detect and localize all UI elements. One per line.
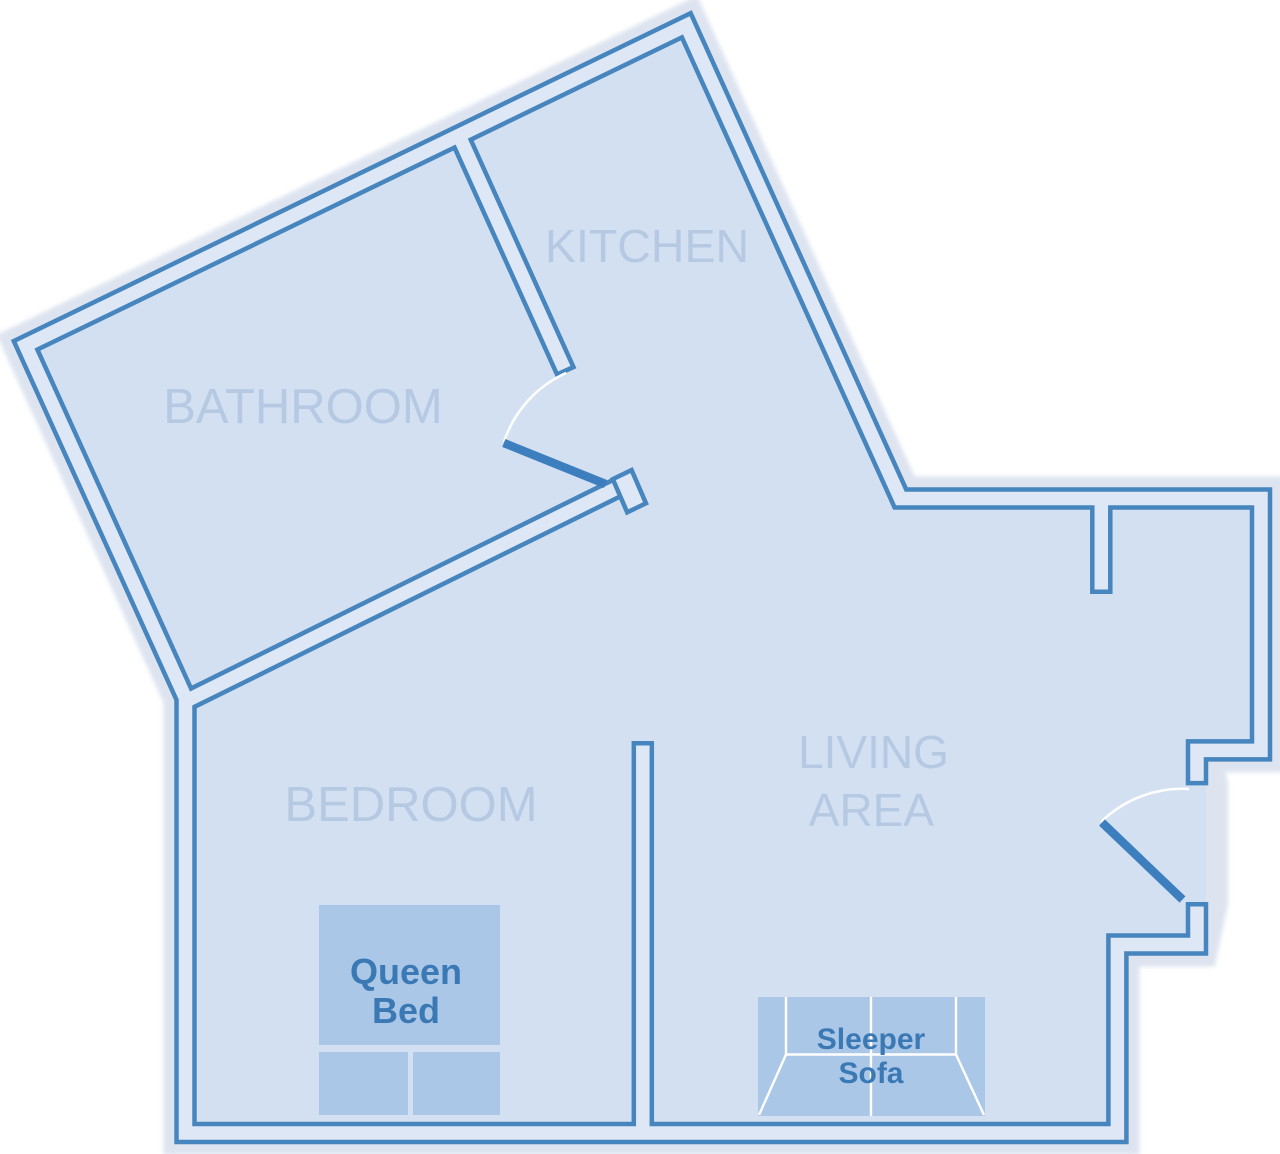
- svg-text:Sleeper: Sleeper: [817, 1023, 926, 1056]
- svg-text:Sofa: Sofa: [838, 1057, 903, 1090]
- svg-text:Queen: Queen: [350, 951, 462, 992]
- svg-text:BEDROOM: BEDROOM: [284, 778, 537, 832]
- svg-text:LIVING: LIVING: [798, 726, 949, 778]
- svg-text:KITCHEN: KITCHEN: [545, 220, 749, 272]
- svg-text:BATHROOM: BATHROOM: [163, 380, 442, 434]
- svg-text:Bed: Bed: [372, 990, 440, 1031]
- svg-text:AREA: AREA: [809, 784, 935, 836]
